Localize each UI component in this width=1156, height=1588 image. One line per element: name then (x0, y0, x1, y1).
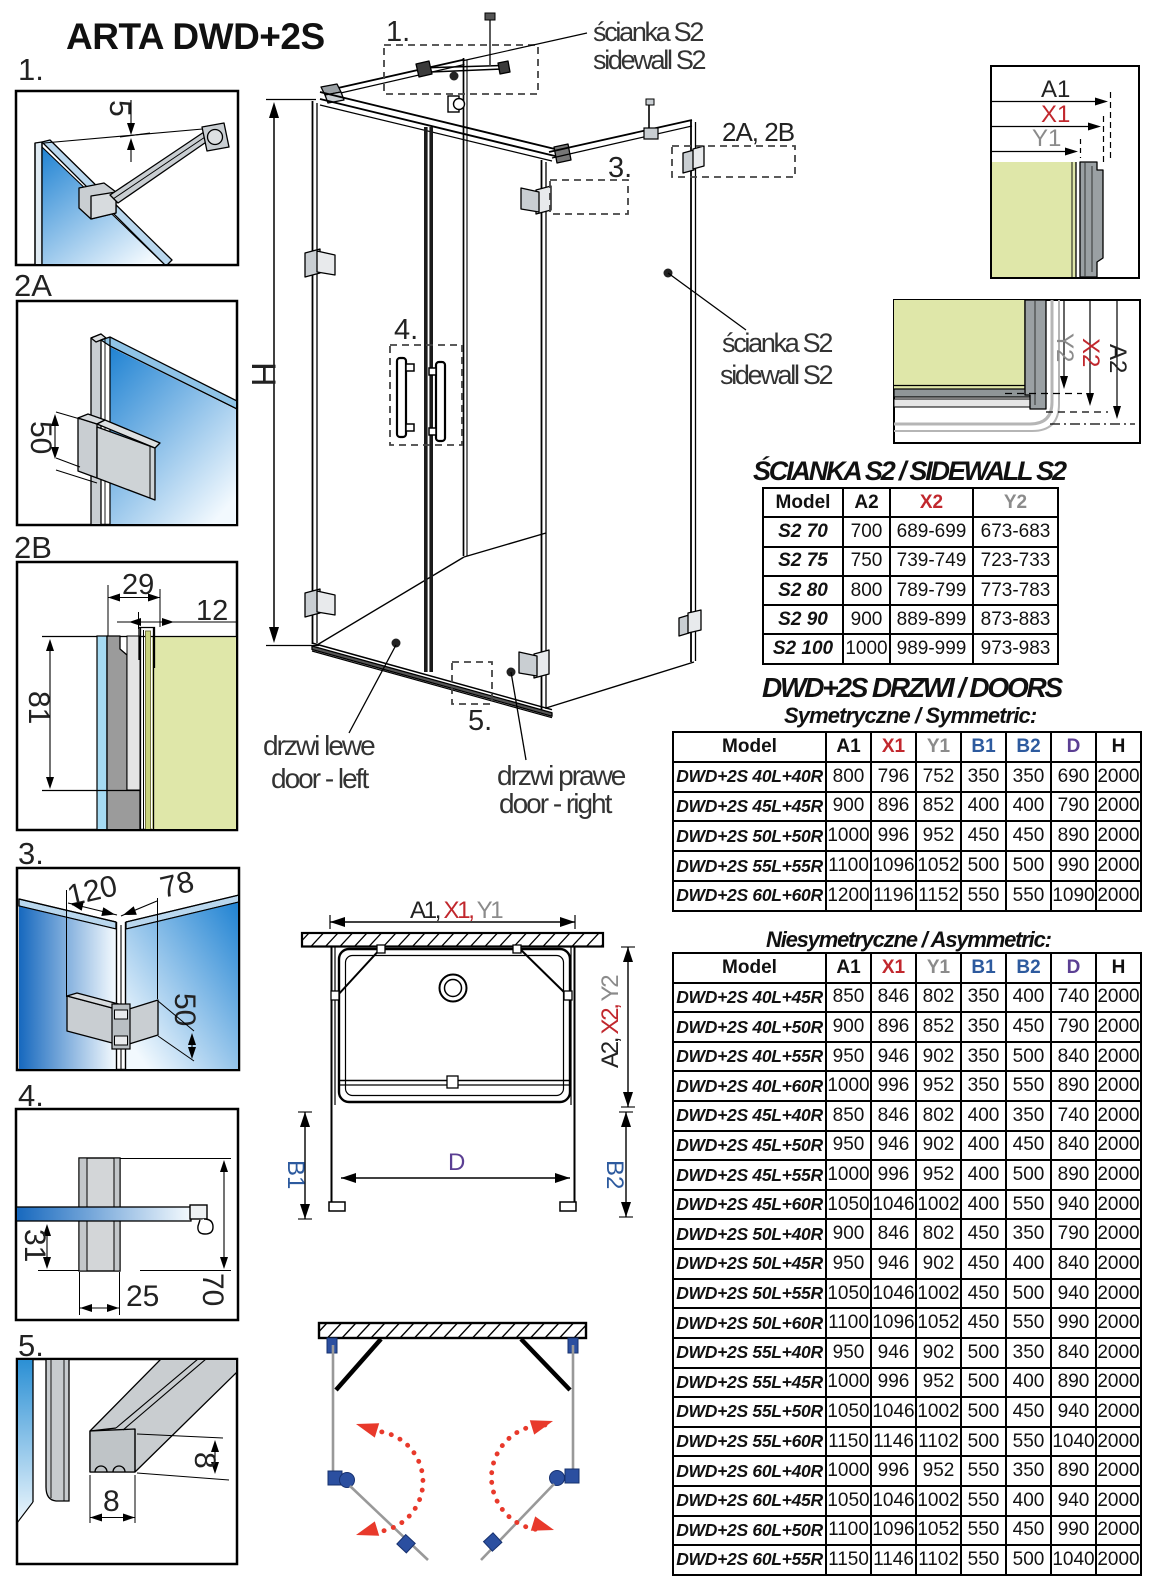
svg-text:50: 50 (168, 993, 201, 1026)
svg-text:Y2: Y2 (1051, 333, 1078, 362)
svg-text:drzwi lewe: drzwi lewe (263, 730, 375, 761)
svg-text:78: 78 (157, 865, 197, 905)
svg-text:5.: 5. (468, 705, 492, 737)
svg-text:door - right: door - right (499, 788, 613, 819)
svg-text:B1: B1 (282, 1160, 309, 1189)
svg-text:X2: X2 (1077, 338, 1104, 367)
svg-text:2B: 2B (14, 530, 52, 565)
svg-text:X1: X1 (1041, 101, 1070, 128)
svg-text:1.: 1. (18, 52, 44, 87)
svg-text:8: 8 (188, 1452, 221, 1469)
svg-text:3.: 3. (18, 836, 44, 871)
svg-text:3.: 3. (608, 152, 632, 184)
svg-text:2A: 2A (14, 268, 52, 303)
svg-text:A2: A2 (1104, 344, 1131, 373)
svg-text:31: 31 (18, 1229, 51, 1262)
svg-text:ścianka S2: ścianka S2 (593, 17, 703, 47)
svg-text:70: 70 (196, 1273, 229, 1306)
svg-text:ścianka S2: ścianka S2 (722, 328, 832, 358)
svg-text:25: 25 (126, 1280, 159, 1313)
svg-text:B2: B2 (601, 1160, 628, 1189)
svg-text:D: D (448, 1149, 465, 1176)
svg-text:2A, 2B: 2A, 2B (722, 117, 794, 147)
svg-text:A1: A1 (1041, 76, 1070, 103)
svg-text:sidewall S2: sidewall S2 (593, 45, 706, 75)
svg-text:8: 8 (103, 1485, 120, 1518)
svg-text:H: H (244, 362, 282, 387)
svg-text:sidewall S2: sidewall S2 (720, 360, 833, 390)
svg-text:4.: 4. (394, 314, 418, 346)
svg-text:A2, X2, Y2: A2, X2, Y2 (597, 975, 624, 1068)
svg-text:drzwi prawe: drzwi prawe (497, 760, 626, 791)
svg-text:5: 5 (103, 100, 136, 117)
svg-text:A1, X1, Y1: A1, X1, Y1 (410, 897, 503, 924)
svg-text:50: 50 (24, 421, 57, 454)
svg-text:door - left: door - left (271, 763, 369, 794)
svg-text:Y1: Y1 (1032, 125, 1061, 152)
svg-text:1.: 1. (386, 16, 410, 48)
svg-text:120: 120 (64, 869, 120, 912)
svg-text:81: 81 (22, 691, 55, 724)
